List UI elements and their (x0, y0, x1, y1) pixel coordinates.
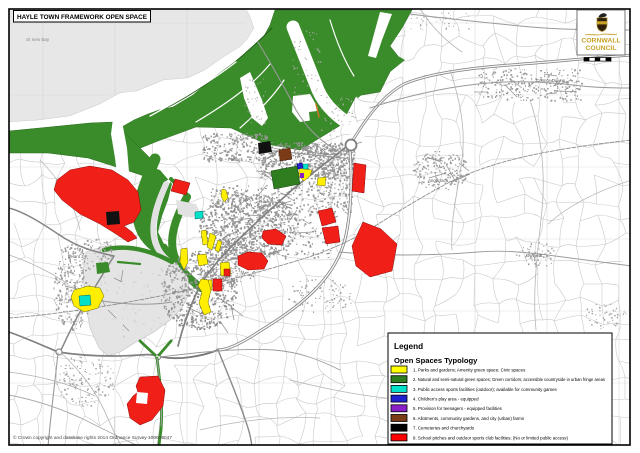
svg-text:3. Public access sports facili: 3. Public access sports facilities (outd… (413, 387, 558, 392)
svg-text:2. Natural and semi-natural gr: 2. Natural and semi-natural green spaces… (413, 377, 606, 382)
svg-text:1. Parks and gardens; Amenity: 1. Parks and gardens; Amenity green spac… (413, 367, 526, 372)
svg-text:Open Spaces Typology: Open Spaces Typology (394, 356, 478, 365)
svg-text:4. Children's play area - equi: 4. Children's play area - equipped (413, 397, 479, 402)
svg-text:Phillack: Phillack (228, 157, 244, 162)
svg-text:St Ives Bay: St Ives Bay (26, 37, 50, 42)
svg-text:HAYLE TOWN FRAMEWORK OPEN SPAC: HAYLE TOWN FRAMEWORK OPEN SPACE (17, 14, 148, 21)
svg-text:6. Allotments, community garde: 6. Allotments, community gardens, and ci… (413, 416, 525, 421)
svg-text:Gwinear: Gwinear (526, 253, 543, 258)
svg-text:7. Cemeteries and churchyards: 7. Cemeteries and churchyards (413, 426, 475, 431)
svg-text:Connor Downs: Connor Downs (536, 78, 566, 83)
svg-text:Legend: Legend (394, 342, 423, 351)
svg-text:© Crown copyright and database: © Crown copyright and database rights 20… (13, 434, 172, 441)
svg-text:Angarrack: Angarrack (428, 178, 449, 183)
svg-text:Lelant: Lelant (68, 254, 81, 259)
svg-text:5. Provision for teenagers - e: 5. Provision for teenagers - equipped fa… (413, 406, 503, 411)
svg-text:CORNWALL: CORNWALL (581, 38, 620, 45)
svg-text:8. School pitches and outdoor: 8. School pitches and outdoor sports clu… (413, 435, 569, 440)
svg-text:COUNCIL: COUNCIL (586, 45, 617, 52)
